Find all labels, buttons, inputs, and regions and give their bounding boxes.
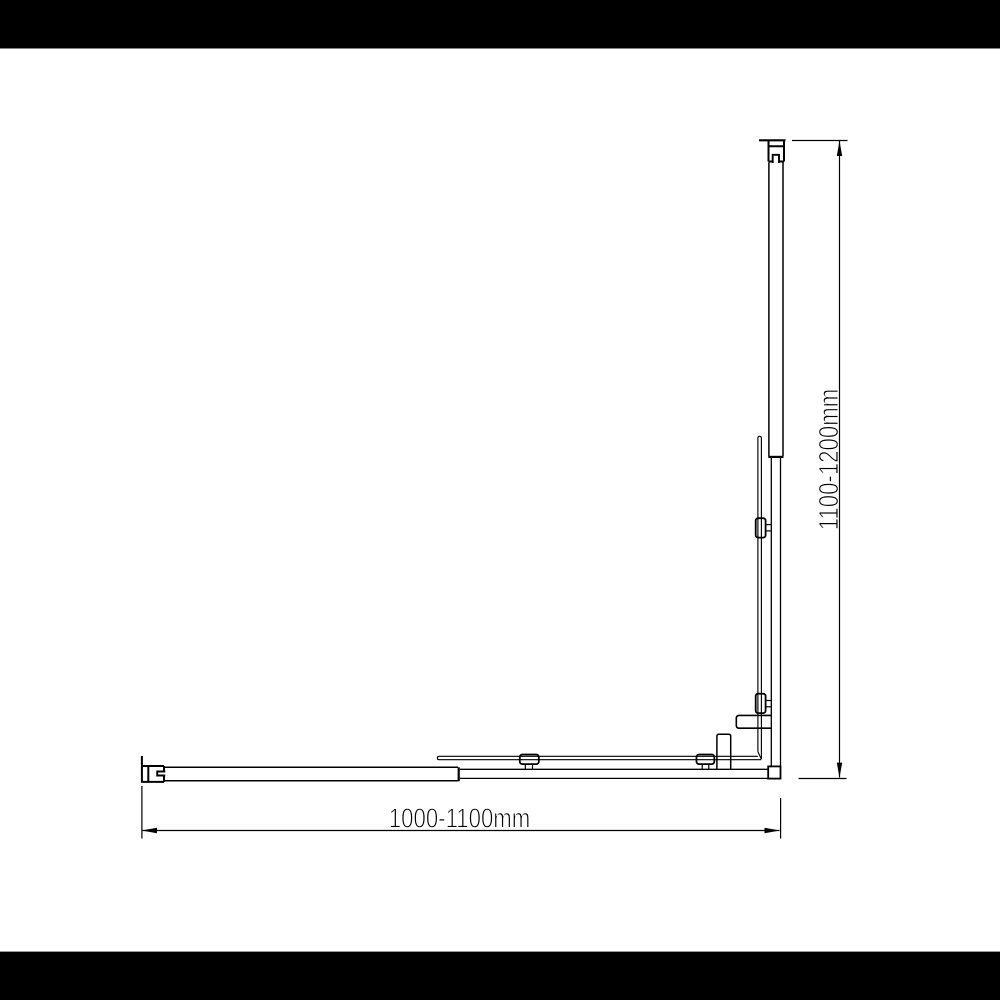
svg-text:1000-1100mm: 1000-1100mm (389, 803, 531, 834)
svg-text:1100-1200mm: 1100-1200mm (813, 389, 844, 531)
